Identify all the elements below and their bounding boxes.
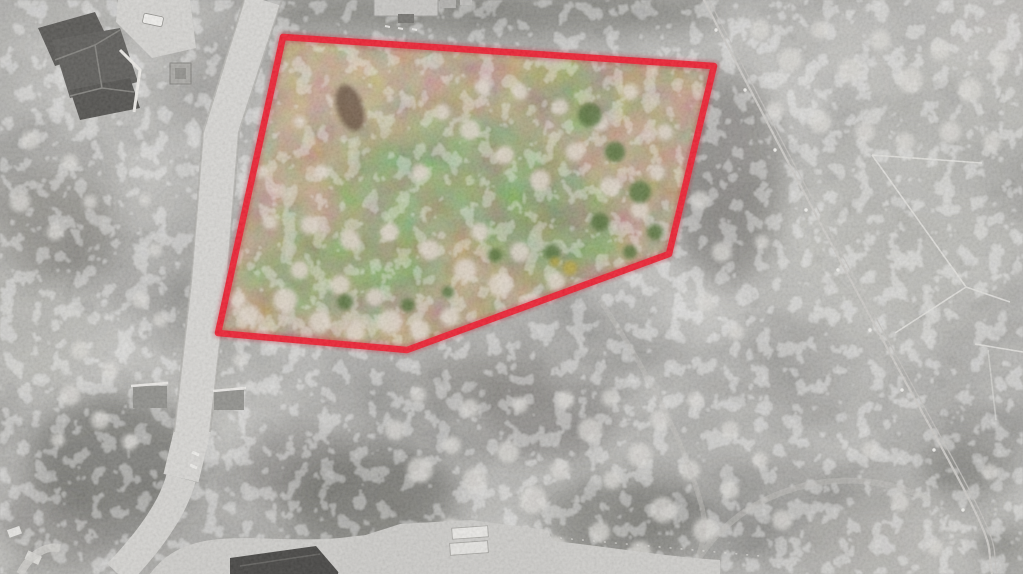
aerial-property-photo [0, 0, 1023, 574]
photo-grain [0, 0, 1023, 574]
aerial-photo-canvas [0, 0, 1023, 574]
